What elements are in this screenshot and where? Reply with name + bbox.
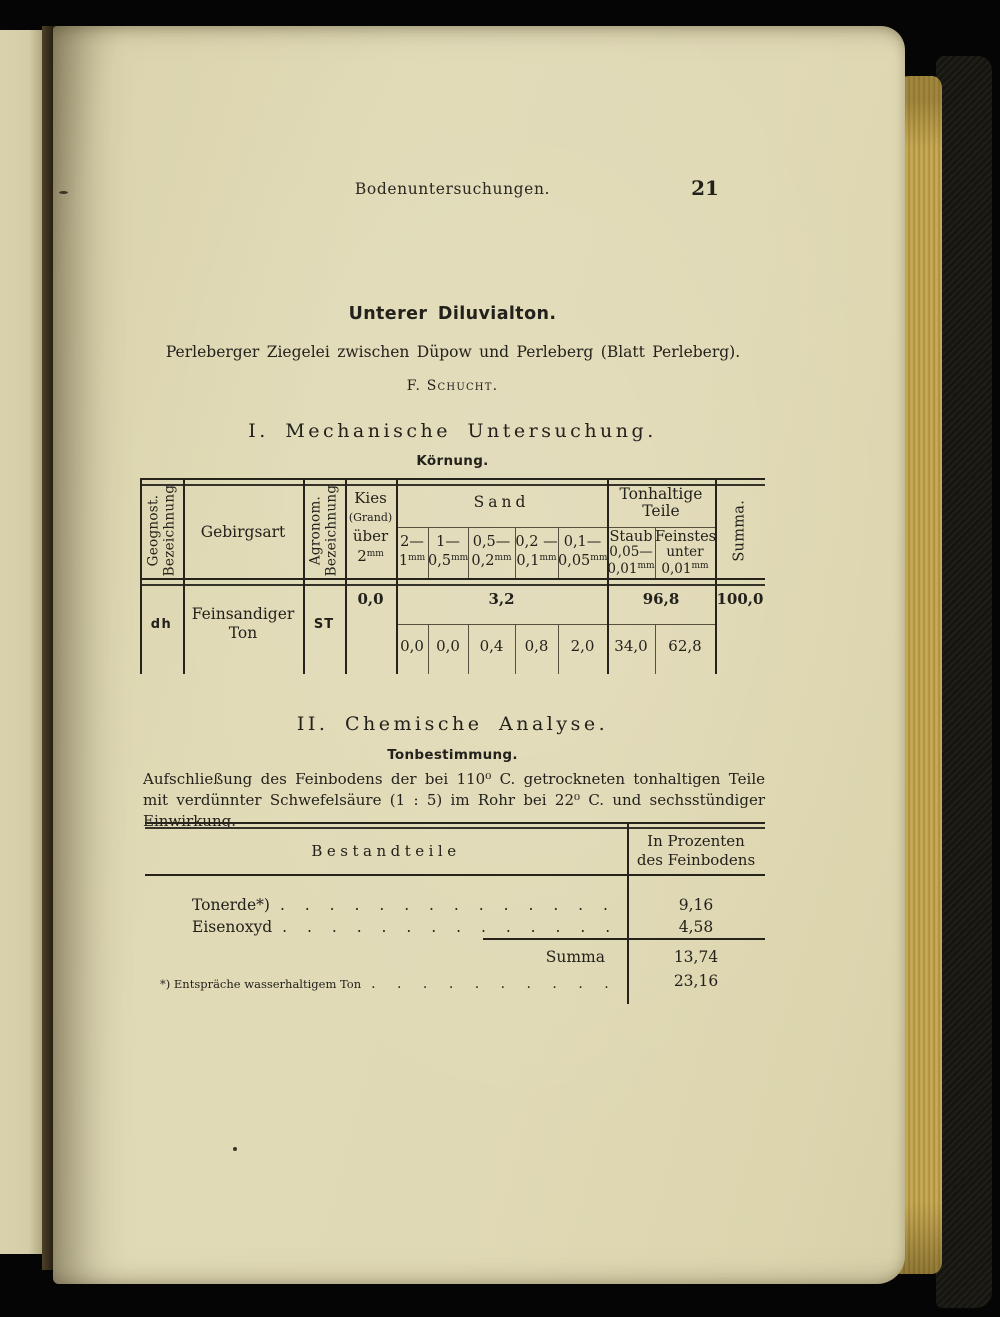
col-header-prozente-line2: des Feinbodens: [627, 851, 765, 869]
table-rule: [145, 874, 765, 876]
page-number: 21: [665, 176, 745, 200]
table-rule: [715, 478, 717, 674]
col-group-tonhaltige: Tonhaltige Teile: [607, 486, 715, 520]
table-rule: [483, 938, 765, 940]
cell-sand-5: 2,0: [558, 638, 607, 655]
chemical-analysis-table: Bestandteile In Prozenten des Feinbodens…: [145, 822, 765, 1012]
table-row: Eisenoxyd . . . . . . . . . . . . . . . …: [192, 918, 616, 936]
col-header-bestandteile: Bestandteile: [145, 842, 627, 860]
footnote-row: *) Entspräche wasserhaltigem Ton . . . .…: [160, 976, 616, 992]
col-header-agronom: Agronom. Bezeichnung: [309, 485, 340, 577]
col-header-sand-2: 1— 0,5mm: [428, 534, 468, 569]
table-rule: [140, 584, 765, 586]
dot-leader: . . . . . . . . . . . . . . . . . . . . …: [280, 896, 616, 914]
cell-agronom-value: ST: [303, 616, 345, 633]
ink-speck: [233, 1147, 237, 1151]
col-header-sand-4: 0,2 — 0,1mm: [515, 534, 558, 569]
table-rule: [140, 578, 765, 580]
footnote-value: 23,16: [627, 972, 765, 990]
table-rule: [396, 527, 715, 528]
cell-sand-1: 0,0: [396, 638, 428, 655]
row-label: Eisenoxyd: [192, 918, 272, 936]
row-label: Tonerde*): [192, 896, 270, 914]
summa-label: Summa: [447, 948, 605, 966]
page-title: Unterer Diluvialton.: [140, 304, 765, 324]
col-header-sand-5: 0,1— 0,05mm: [558, 534, 607, 569]
cell-sand-2: 0,0: [428, 638, 468, 655]
footnote-label: *) Entspräche wasserhaltigem Ton: [160, 977, 361, 991]
dot-leader: . . . . . . . . . . . . . . . . . . . . …: [371, 976, 616, 992]
page-subtitle: Perleberger Ziegelei zwischen Düpow und …: [113, 343, 793, 361]
cell-geognost-value: dh: [140, 616, 183, 633]
ink-speck: [59, 191, 68, 194]
table-rule: [396, 624, 715, 625]
table-row: Tonerde*) . . . . . . . . . . . . . . . …: [192, 896, 616, 914]
col-header-prozente-line1: In Prozenten: [627, 832, 765, 850]
author-name: F. Schucht.: [140, 378, 765, 394]
col-header-feinstes: Feinstes unter 0,01mm: [655, 530, 715, 577]
col-header-staub: Staub 0,05— 0,01mm: [607, 530, 655, 577]
section1-heading: I. Mechanische Untersuchung.: [140, 420, 765, 442]
col-header-gebirgsart: Gebirgsart: [183, 524, 303, 541]
col-header-kies: Kies (Grand) über 2mm: [345, 490, 396, 565]
col-header-sand-3: 0,5— 0,2mm: [468, 534, 515, 569]
col-group-sand: Sand: [396, 494, 607, 511]
table-rule: [145, 827, 765, 829]
cell-kies-value: 0,0: [345, 591, 396, 608]
cell-sand-3: 0,4: [468, 638, 515, 655]
table-rule: [145, 822, 765, 824]
table-rule: [303, 478, 305, 674]
section1-subheading: Körnung.: [140, 453, 765, 469]
cell-ton-total: 96,8: [607, 591, 715, 608]
table-rule: [140, 478, 142, 674]
cell-staub-value: 34,0: [607, 638, 655, 655]
col-header-geognost: Geognost. Bezeichnung: [147, 485, 178, 577]
table-rule: [140, 478, 765, 480]
row-value: 9,16: [627, 896, 765, 914]
cell-sand-total: 3,2: [396, 591, 607, 608]
left-page: [0, 30, 46, 1254]
cell-summa-value: 100,0: [715, 591, 765, 608]
section2-heading: II. Chemische Analyse.: [140, 713, 765, 735]
section2-subheading: Tonbestimmung.: [140, 747, 765, 763]
cell-gebirgsart-value: Feinsandiger Ton: [183, 605, 303, 643]
book-page: Bodenuntersuchungen. 21 Unterer Diluvial…: [53, 26, 905, 1284]
dot-leader: . . . . . . . . . . . . . . . . . . . . …: [282, 918, 616, 936]
cell-feinstes-value: 62,8: [655, 638, 715, 655]
col-header-summa: Summa.: [732, 496, 748, 566]
book-cover-edge: [936, 56, 992, 1308]
col-header-sand-1: 2— 1mm: [396, 534, 428, 569]
row-value: 4,58: [627, 918, 765, 936]
mechanical-analysis-table: Geognost. Bezeichnung Gebirgsart Agronom…: [140, 478, 765, 678]
summa-value: 13,74: [627, 948, 765, 966]
table-rule: [183, 478, 185, 674]
cell-sand-4: 0,8: [515, 638, 558, 655]
